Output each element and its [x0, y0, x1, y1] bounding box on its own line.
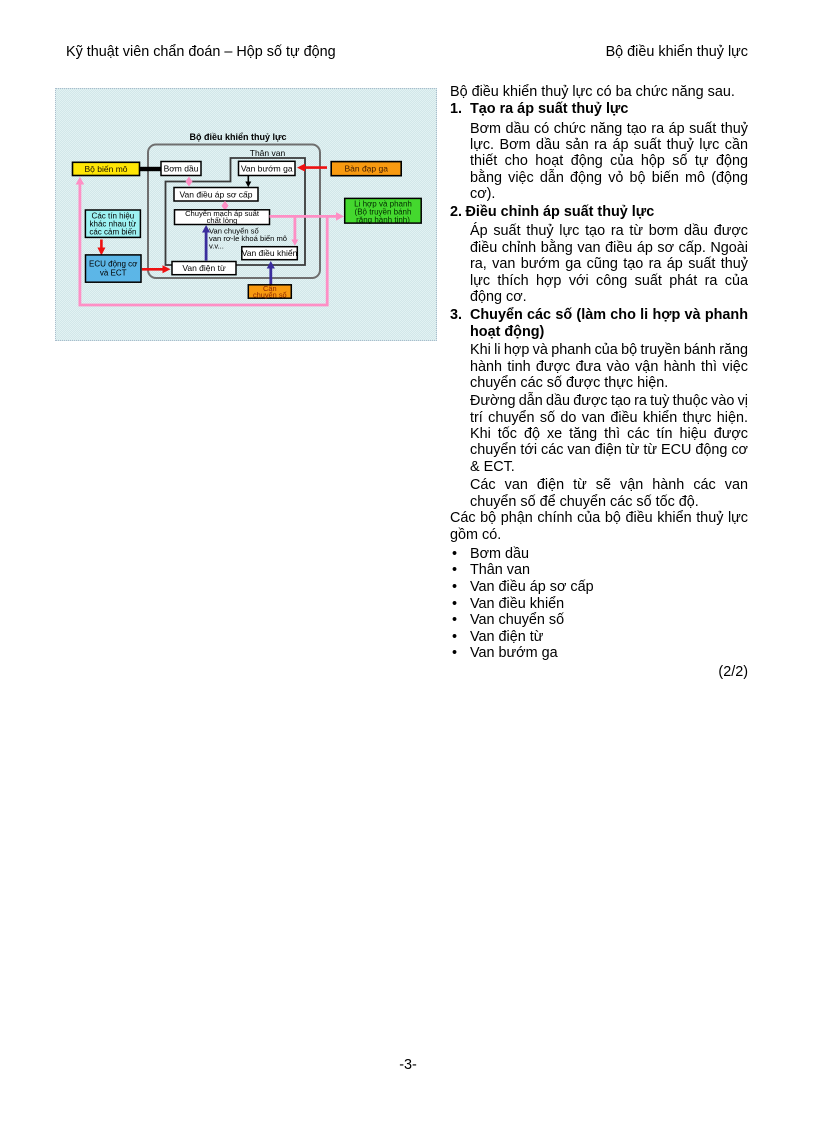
svg-text:Van điện từ: Van điện từ — [182, 263, 226, 273]
svg-text:v.v...: v.v... — [209, 242, 224, 251]
svg-text:Bơm dầu: Bơm dầu — [164, 164, 199, 174]
svg-text:các cảm biến: các cảm biến — [89, 228, 136, 237]
svg-text:Van điều khiển: Van điều khiển — [242, 248, 298, 258]
svg-text:ECU động cơ: ECU động cơ — [89, 260, 138, 269]
svg-text:chất lỏng: chất lỏng — [207, 216, 238, 225]
svg-text:và ECT: và ECT — [100, 269, 127, 278]
svg-text:chuyển số: chuyển số — [253, 290, 287, 299]
svg-text:Van điều áp sơ cấp: Van điều áp sơ cấp — [180, 189, 253, 199]
svg-text:Bộ biến mô: Bộ biến mô — [85, 164, 128, 174]
svg-text:Van bướm ga: Van bướm ga — [241, 163, 293, 173]
svg-text:Bộ điều khiển thuỷ lực: Bộ điều khiển thuỷ lực — [189, 132, 286, 142]
svg-text:Bàn đạp ga: Bàn đạp ga — [344, 164, 388, 174]
svg-text:Thân van: Thân van — [250, 148, 286, 158]
svg-text:răng hành tinh): răng hành tinh) — [356, 215, 410, 224]
